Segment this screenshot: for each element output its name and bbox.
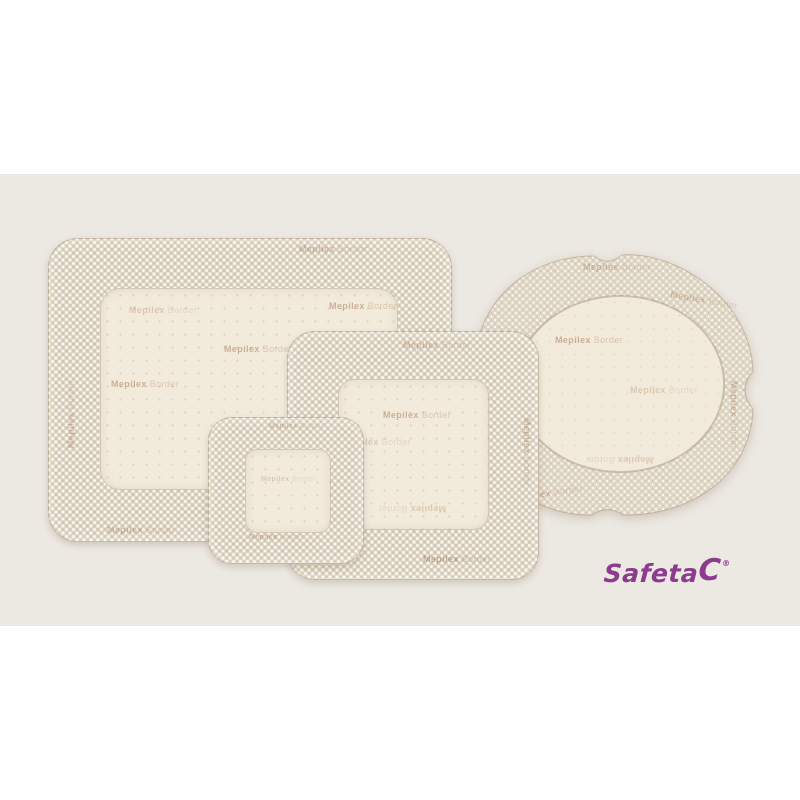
product-photo-page: Mepilex Border Mepilex Border Mepilex Bo… [0,0,800,800]
mepilex-watermark: Mepilex Border [423,554,491,564]
small-dressing-pad [245,449,331,533]
mepilex-watermark: Mepilex Border [299,244,367,254]
mepilex-watermark: Mepilex Border [249,534,303,542]
mepilex-watermark: Mepilex Border [269,423,323,431]
mepilex-watermark: Mepilex Border [66,380,76,448]
safetac-logo-text: Safeta [603,559,700,588]
safetac-logo-cap: C [697,553,721,588]
registered-trademark-icon: ® [722,559,731,568]
mepilex-watermark: Mepilex Border [522,418,532,486]
safetac-logo: SafetaC® [603,553,732,588]
oval-dressing-pad [516,296,724,472]
mepilex-watermark: Mepilex Border [403,340,471,350]
mepilex-watermark: Mepilex Border [107,525,175,535]
dressing-small-square: Mepilex Border Mepilex Border Mepilex Bo… [208,417,364,564]
